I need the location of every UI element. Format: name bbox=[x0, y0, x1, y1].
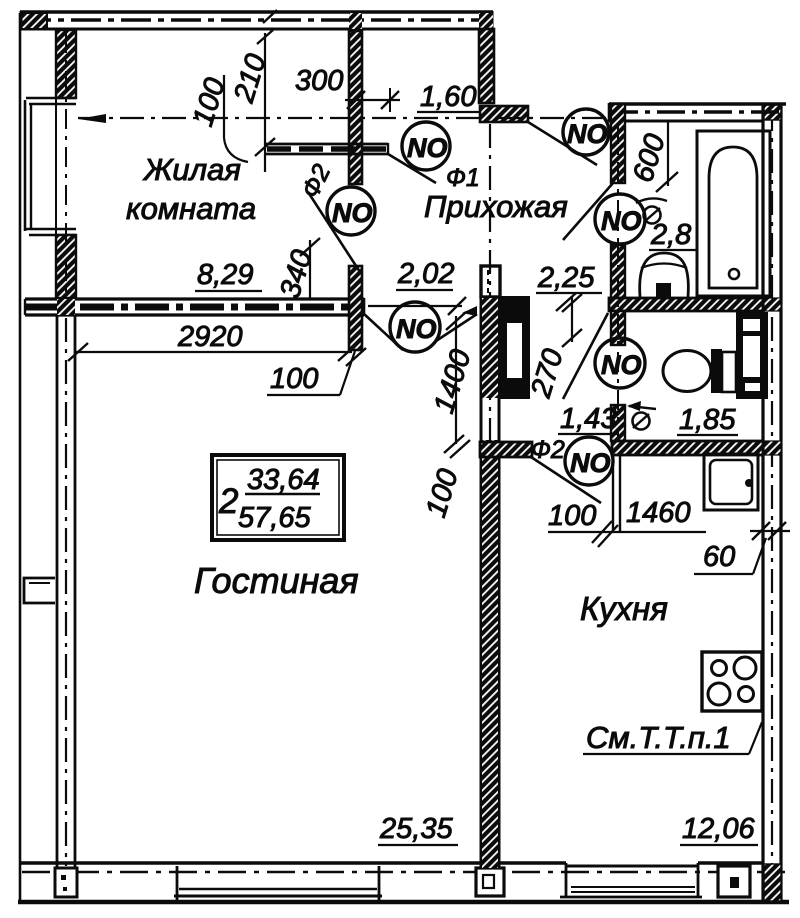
svg-text:NO: NO bbox=[601, 206, 642, 236]
svg-text:NO: NO bbox=[567, 119, 608, 149]
svg-text:NO: NO bbox=[601, 350, 642, 380]
svg-text:2920: 2920 bbox=[177, 321, 243, 353]
svg-text:Жилая: Жилая bbox=[142, 152, 241, 187]
svg-text:Ф2: Ф2 bbox=[531, 436, 565, 464]
svg-text:Ф1: Ф1 bbox=[446, 164, 480, 192]
svg-text:60: 60 bbox=[703, 541, 735, 573]
svg-text:Кухня: Кухня bbox=[580, 590, 668, 627]
svg-text:25,35: 25,35 bbox=[379, 813, 453, 845]
svg-text:1,43: 1,43 bbox=[560, 403, 616, 435]
svg-text:1,85: 1,85 bbox=[679, 404, 736, 436]
svg-text:NO: NO bbox=[570, 448, 611, 478]
svg-text:NO: NO bbox=[396, 314, 437, 344]
svg-text:NO: NO bbox=[332, 198, 373, 228]
svg-text:1460: 1460 bbox=[626, 497, 691, 529]
svg-text:8,29: 8,29 bbox=[197, 259, 253, 291]
svg-text:комната: комната bbox=[126, 191, 256, 226]
svg-text:300: 300 bbox=[295, 65, 343, 97]
svg-text:2: 2 bbox=[218, 482, 238, 521]
svg-text:100: 100 bbox=[548, 500, 596, 532]
svg-text:См.Т.Т.п.1: См.Т.Т.п.1 bbox=[586, 720, 731, 755]
svg-text:33,64: 33,64 bbox=[247, 464, 320, 496]
svg-text:NO: NO bbox=[407, 133, 448, 163]
svg-text:57,65: 57,65 bbox=[238, 502, 311, 534]
svg-text:Гостиная: Гостиная bbox=[194, 560, 359, 601]
svg-text:Прихожая: Прихожая bbox=[424, 189, 568, 224]
svg-text:2,25: 2,25 bbox=[537, 262, 595, 294]
svg-text:1,60: 1,60 bbox=[420, 81, 476, 113]
svg-text:100: 100 bbox=[270, 363, 318, 395]
svg-text:2,02: 2,02 bbox=[397, 258, 454, 290]
svg-text:12,06: 12,06 bbox=[682, 813, 755, 845]
